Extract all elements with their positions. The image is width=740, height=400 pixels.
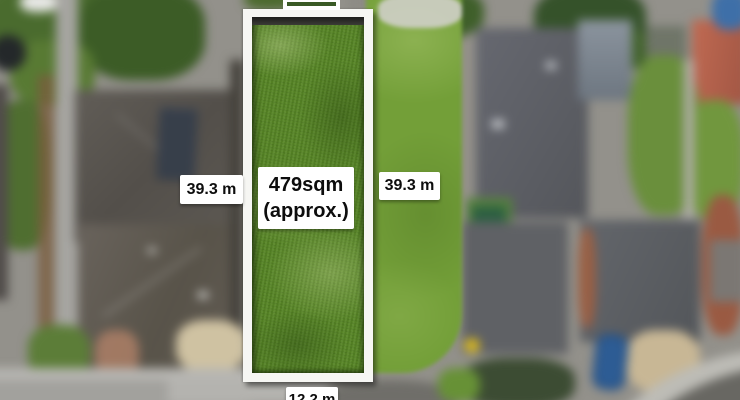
neighbor-concrete-pad	[378, 0, 462, 28]
depth-label-left: 39.3 m	[180, 175, 243, 204]
back-fence	[252, 17, 364, 25]
top-cropped-label	[283, 0, 340, 10]
area-qualifier: (approx.)	[263, 198, 349, 224]
area-label: 479sqm (approx.)	[258, 167, 354, 229]
depth-label-right: 39.3 m	[379, 172, 440, 200]
area-value: 479sqm	[269, 172, 344, 198]
frontage-label: 12.2 m	[286, 387, 338, 400]
aerial-property-photo: 39.3 m 39.3 m 479sqm (approx.) 12.2 m	[0, 0, 740, 400]
top-cropped-label-fill	[287, 2, 336, 6]
